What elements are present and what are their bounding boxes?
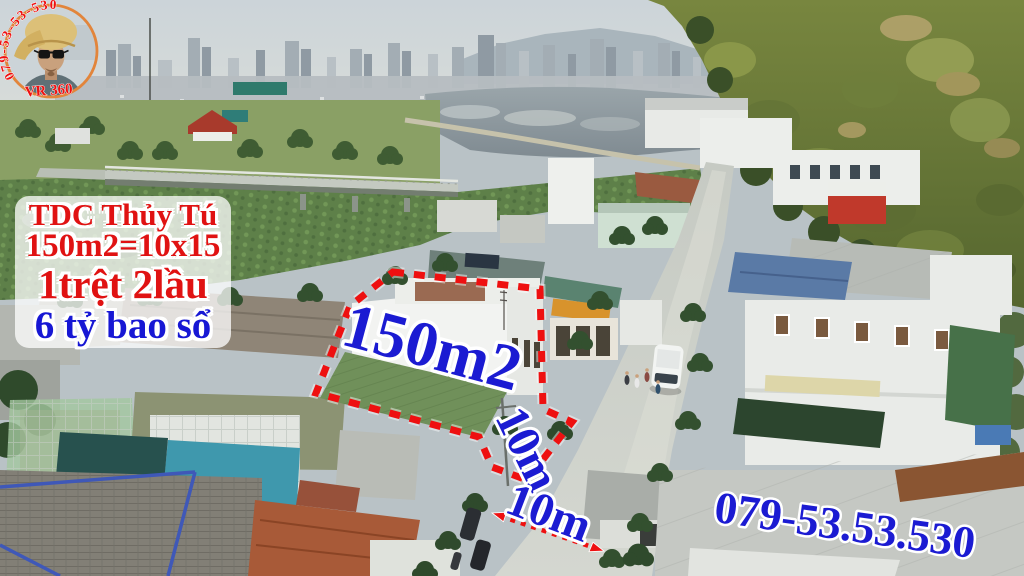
panel-line-area: 150m2=10x15 <box>26 230 221 264</box>
panel-line-project-name: TDC Thủy Tú <box>29 199 217 231</box>
real-estate-listing-photo: 150m2 10m 10m 079-53.53.530 <box>0 0 1024 576</box>
panel-line-price: 6 tỷ bao sổ <box>35 306 212 346</box>
solar-panel <box>465 253 500 269</box>
cottage <box>55 128 90 144</box>
red-wall-house <box>828 196 886 224</box>
rooftop-terrace <box>415 282 485 301</box>
listing-info-panel: TDC Thủy Tú 150m2=10x15 1trệt 2lầu 6 tỷ … <box>15 196 231 348</box>
shingle-roof <box>0 470 262 576</box>
vr360-label: VR 360 <box>24 81 73 100</box>
teal-warehouse-roof <box>233 82 287 95</box>
white-tall-house <box>548 158 594 224</box>
blue-tarp <box>975 425 1011 445</box>
panel-line-floors: 1trệt 2lầu <box>38 264 208 306</box>
big-white-house <box>733 300 1015 465</box>
green-corrugated-roof <box>945 325 1015 432</box>
